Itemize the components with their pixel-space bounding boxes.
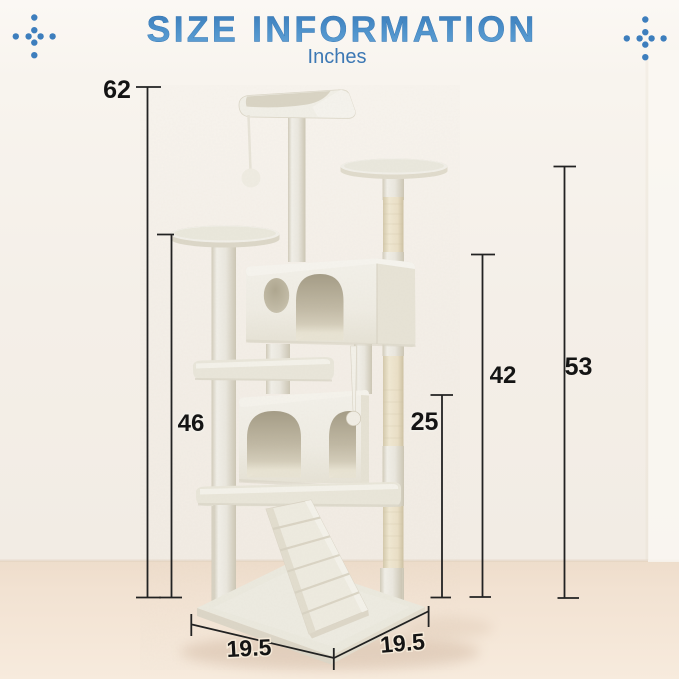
svg-text:19.5: 19.5 [379, 628, 426, 658]
svg-text:19.5: 19.5 [226, 634, 272, 662]
svg-text:46: 46 [178, 410, 205, 437]
svg-text:Inches: Inches [308, 46, 367, 68]
svg-text:SIZE INFORMATION: SIZE INFORMATION [147, 9, 538, 50]
svg-text:42: 42 [490, 362, 517, 389]
svg-text:62: 62 [103, 76, 131, 104]
svg-text:25: 25 [411, 408, 439, 436]
svg-text:53: 53 [565, 353, 593, 381]
